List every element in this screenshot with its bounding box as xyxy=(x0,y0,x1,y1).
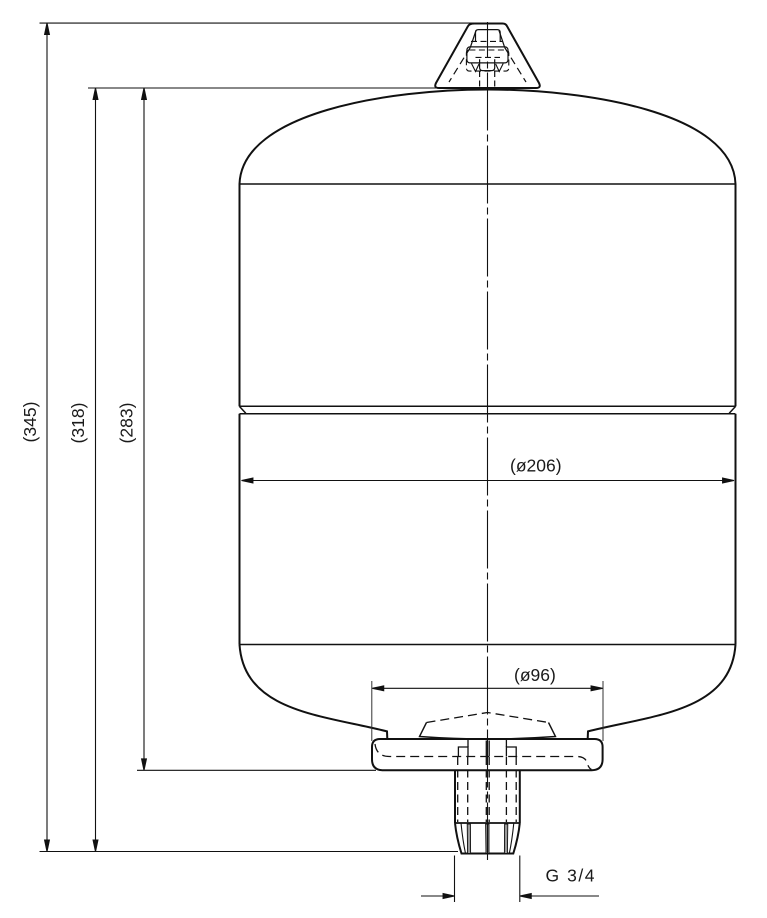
svg-text:G 3/4: G 3/4 xyxy=(546,866,595,886)
svg-text:(ø206): (ø206) xyxy=(510,456,562,476)
svg-text:(318): (318) xyxy=(68,403,88,444)
svg-text:(ø96): (ø96) xyxy=(514,665,556,685)
svg-text:(283): (283) xyxy=(117,403,137,444)
svg-text:(345): (345) xyxy=(20,402,40,443)
